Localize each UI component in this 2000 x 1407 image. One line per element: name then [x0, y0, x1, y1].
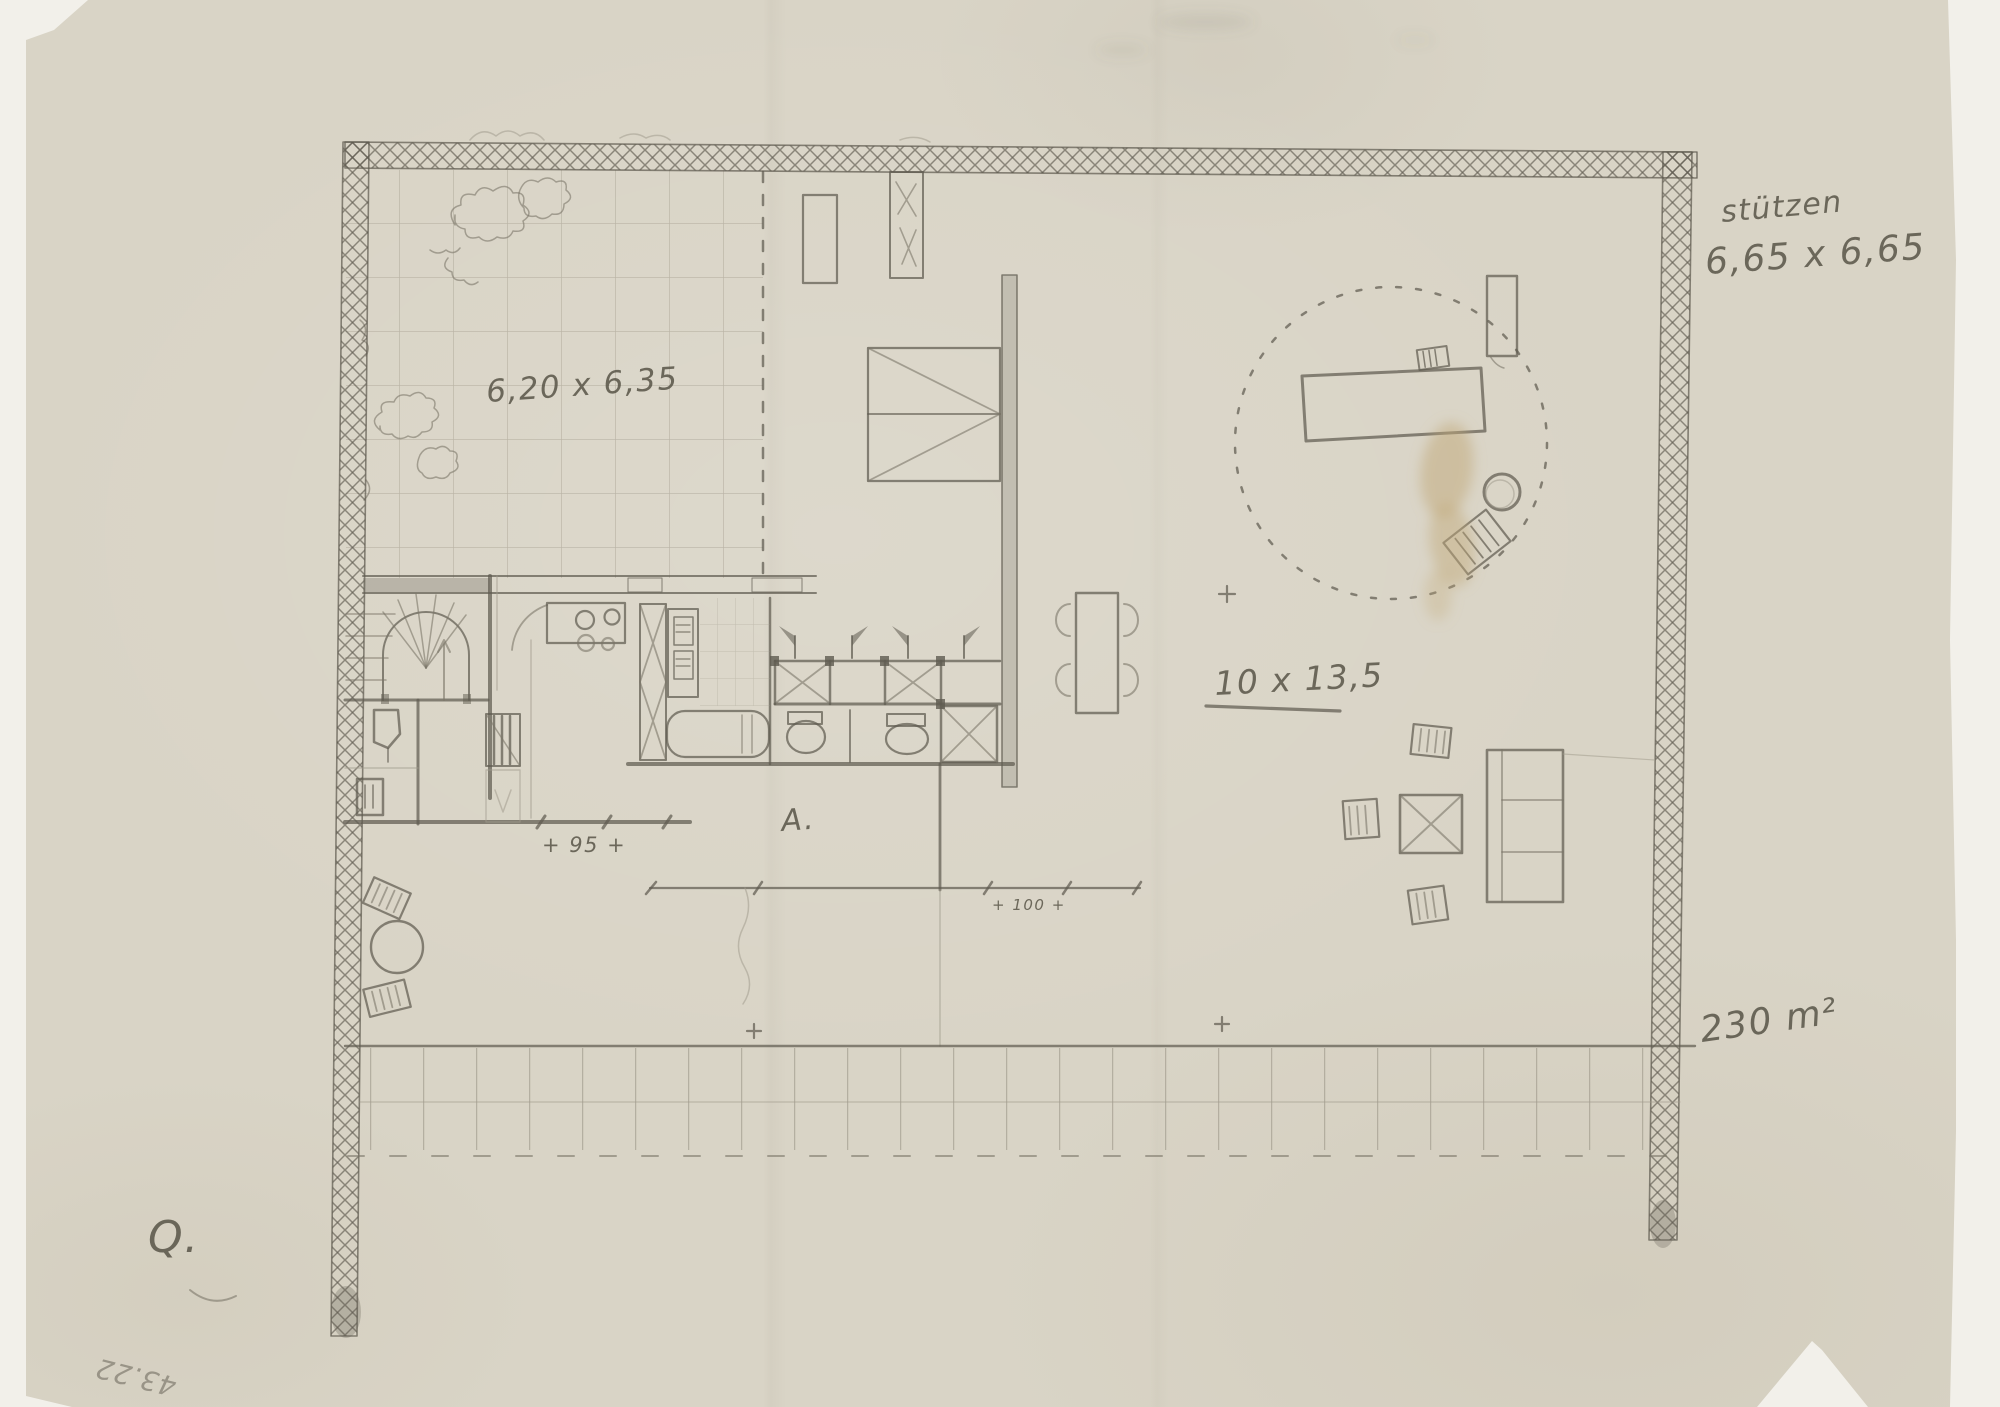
bath-cabinets — [640, 598, 770, 760]
stair-direction-arrow — [438, 640, 450, 700]
annotation-living-area-dims: 10 x 13,5 — [1213, 655, 1384, 703]
interior-partitions — [345, 576, 1013, 828]
survey-crosses — [747, 586, 1235, 1038]
armchair — [1408, 886, 1448, 925]
garden-chair — [363, 877, 411, 919]
dining-chair — [1124, 604, 1138, 696]
bathtub — [667, 711, 769, 757]
annotation-section-mark: A. — [778, 802, 816, 839]
pencil-smudges — [1096, 13, 1433, 57]
underline — [1206, 706, 1340, 711]
round-table — [371, 921, 423, 973]
dashed-circle — [1235, 287, 1547, 599]
terrace-pavers — [345, 1046, 1695, 1156]
dimension-line-100 — [646, 764, 1141, 1046]
partition-wall — [1002, 275, 1017, 787]
kitchen-wall — [363, 576, 816, 593]
toilet-bowl — [787, 721, 825, 753]
bathroom-tiles — [700, 598, 770, 706]
armchair — [1411, 724, 1452, 758]
dining-chair — [1056, 604, 1070, 696]
toilet-cistern — [788, 712, 822, 724]
dining-table — [1056, 593, 1138, 713]
annotation-columns-label: stützen — [1720, 184, 1844, 229]
bidet-bowl — [886, 724, 928, 754]
garden-table-group — [363, 877, 423, 1017]
shelf-rect — [890, 172, 923, 278]
sofa — [1487, 750, 1563, 902]
door-flags — [779, 626, 980, 658]
annotation-sheet-mark: Q. — [148, 1212, 200, 1263]
kitchen-stove — [547, 603, 625, 651]
annotation-dim-95: + 95 + — [542, 833, 626, 857]
dining-circle-area — [1235, 276, 1547, 599]
toilet-fixtures — [787, 710, 928, 762]
floor-plan-drawing: stützen 6,65 x 6,65 6,20 x 6,35 10 x 13,… — [0, 0, 2000, 1407]
annotation-dim-100: + 100 + — [992, 896, 1066, 914]
sheet-mark-flourish — [190, 1290, 236, 1301]
living-group — [1343, 724, 1655, 924]
sideboard-rect — [1487, 276, 1517, 356]
break-line — [738, 888, 749, 1004]
upper-furniture — [803, 172, 1000, 481]
annotation-inventory-number: 43.22 — [92, 1351, 179, 1401]
small-chair — [1417, 346, 1449, 370]
annotation-total-area: 230 m² — [1698, 991, 1841, 1051]
toilet-under-stairs — [374, 710, 400, 748]
cabinet-rect — [803, 195, 837, 283]
armchair — [1343, 799, 1380, 839]
closet-column-row — [770, 656, 1000, 762]
garden-chair — [363, 980, 411, 1017]
annotation-columns-dims: 6,65 x 6,65 — [1704, 227, 1927, 283]
wardrobe-diagonals — [868, 348, 1000, 481]
